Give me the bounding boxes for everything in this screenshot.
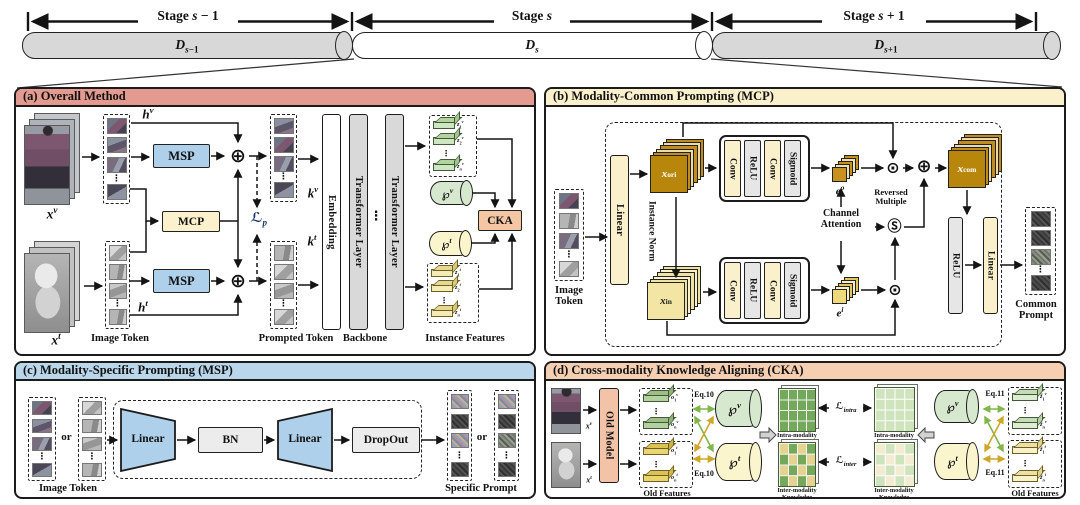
intra-modality-knowledge-grid-old [874, 387, 915, 432]
image-patch [107, 118, 127, 134]
cross-modality-align-arrows-right [981, 401, 1007, 467]
multiply-operator-bottom: ⊙ [887, 282, 903, 298]
visible-image-small [551, 388, 581, 434]
old-features-visible-right: z̃1v ⋮ z̃nv [1008, 387, 1062, 435]
image-patch [559, 261, 579, 277]
prompt-patch [451, 462, 469, 477]
feature-bar-green [433, 137, 455, 145]
prompt-patch [498, 394, 516, 409]
backbone-ellipsis: ⋮ [369, 209, 383, 223]
image-patch [107, 137, 127, 153]
prompt-patch [1031, 249, 1051, 265]
feature-label: o1v [671, 393, 678, 403]
sigmoid-bar: Sigmoid [784, 262, 801, 319]
old-model-bar: Old Model [599, 388, 619, 483]
feature-row: onv [643, 420, 689, 430]
image-token-strip: ⋮ [554, 189, 584, 281]
image-patch [32, 401, 52, 415]
pool-label: ℘v [947, 399, 966, 415]
ellipsis: ⋮ [652, 463, 689, 467]
feature-bar-green [1012, 421, 1038, 429]
feature-row: o1t [643, 446, 689, 456]
feature-row: z1v [433, 120, 473, 130]
feature-row: z1t [431, 268, 475, 278]
panel-b-title: (b) Modality-Common Prompting (MCP) [546, 89, 1064, 107]
conv-label: Conv [728, 158, 738, 180]
feature-bar-green [1012, 393, 1038, 401]
specific-prompt-strip-visible: ⋮ [447, 390, 472, 481]
stage-label: Stage s − 1 [98, 9, 278, 24]
cross-modality-align-arrows-left [691, 401, 717, 467]
cylinder-cap [1043, 31, 1061, 60]
image-patch [559, 213, 579, 229]
transformer-layer-bar: Transformer Layer [349, 114, 368, 330]
specific-prompt-caption: Specific Prompt [428, 483, 534, 494]
panel-cross-modality-knowledge-aligning: (d) Cross-modality Knowledge Aligning (C… [544, 361, 1066, 499]
dataset-cylinder-current: Ds [352, 32, 712, 59]
instance-features-visible: z1v z2v ⋮ znv [429, 115, 477, 177]
instance-features-infrared: z1t z2t ⋮ znt [427, 263, 479, 323]
reversed-multiple-label: Reversed Multiple [862, 188, 920, 206]
infrared-image [24, 241, 82, 335]
image-patch [82, 401, 102, 415]
mcp-box: MCP [162, 211, 220, 232]
prompt-loss-label: ℒp [244, 211, 274, 229]
image-patch [274, 118, 294, 134]
attention-vector-original [832, 155, 859, 182]
ellipsis: ⋮ [502, 453, 511, 458]
transformer-layer-bar: Transformer Layer [385, 114, 404, 330]
token-strip-infrared: ⋮ [78, 397, 106, 481]
or-label: or [57, 432, 76, 444]
attention-vector-normalized [832, 277, 859, 304]
image-patch [559, 193, 579, 209]
feature-row: z̃1v [1012, 392, 1058, 402]
linear-label: Linear [120, 433, 176, 445]
linear-label: Linear [986, 251, 996, 280]
feature-bar-green [433, 121, 455, 129]
image-patch [274, 309, 294, 325]
channel-attention-label: Channel Attention [808, 209, 874, 231]
ellipsis: ⋮ [1021, 462, 1058, 466]
old-model-label: Old Model [604, 411, 615, 460]
panel-modality-common-prompting: (b) Modality-Common Prompting (MCP) ⋮ Im… [544, 87, 1066, 356]
photo-visible [24, 125, 70, 205]
feature-bar-yellow [431, 284, 453, 292]
image-token-caption: Image Token [546, 285, 592, 308]
conv-bar: Conv [764, 140, 781, 197]
cylinder-cap [335, 31, 353, 60]
xv-label: xv [580, 422, 598, 431]
old-features-infrared: o1t ⋮ ont [639, 441, 693, 488]
relu-label: ReLU [951, 253, 961, 278]
ei-label: ei [828, 306, 852, 321]
panel-overall-method: (a) Overall Method xv ⋮ hv MSP ⊕ MCP ℒp … [14, 87, 536, 356]
original-token-stack: xori [650, 139, 706, 195]
attention-branch-original: Conv ReLU Conv Sigmoid [719, 135, 810, 202]
feature-bar-yellow [643, 447, 669, 455]
image-patch [274, 264, 294, 280]
prompt-pool-infrared: ℘t [429, 231, 471, 256]
feature-row: z̃nv [1012, 420, 1058, 430]
block-arrow-left-icon [917, 427, 935, 443]
eq11-label: Eq.11 [981, 469, 1009, 478]
prompt-patch [1031, 211, 1051, 227]
prompted-token-strip-infrared: ⋮ [270, 241, 297, 329]
old-features-caption: Old Features [632, 489, 702, 498]
eq10-label: Eq.10 [690, 391, 718, 400]
instance-features-caption: Instance Features [406, 333, 524, 344]
or-label: or [472, 432, 492, 444]
feature-bar-yellow [643, 474, 669, 482]
pool-label: ℘v [442, 186, 461, 201]
block-arrow-right-icon [759, 427, 777, 443]
ellipsis: ⋮ [440, 299, 475, 303]
l-intra-label: ℒintra [829, 402, 863, 415]
ellipsis: ⋮ [1036, 267, 1045, 272]
image-patch [82, 419, 102, 433]
image-patch [32, 419, 52, 433]
prompt-pool-visible: ℘v [715, 390, 761, 427]
pool-label: ℘t [441, 236, 458, 251]
dropout-box: DropOut [352, 427, 420, 453]
prompt-patch [451, 414, 469, 429]
vector-slice [832, 167, 847, 182]
image-patch [109, 264, 127, 280]
image-token-caption: Image Token [20, 483, 116, 494]
common-token-stack: xcom [948, 134, 1004, 190]
sigmoid-bar: Sigmoid [784, 140, 801, 197]
prompt-patch [1031, 275, 1051, 291]
prompt-patch [451, 433, 469, 448]
cylinder-cap [695, 31, 713, 60]
relu-tail-bar: ReLU [948, 217, 963, 314]
linear-label: Linear [614, 204, 625, 236]
cka-box: CKA [478, 210, 522, 231]
feature-bar-yellow [1012, 446, 1038, 454]
panel-a-title: (a) Overall Method [16, 89, 534, 107]
cylinder-cap [749, 442, 762, 482]
old-features-caption: Old Features [1000, 489, 1066, 498]
cylinder-cap [749, 389, 762, 428]
feature-row: o1v [643, 393, 689, 403]
transformer-label: Transformer Layer [353, 176, 364, 268]
relu-label: ReLU [748, 156, 758, 180]
image-patch [274, 182, 294, 198]
feature-row: z̃nt [1012, 473, 1058, 483]
image-patch [274, 245, 294, 261]
eq10-label: Eq.10 [690, 470, 718, 479]
conv-label: Conv [768, 280, 778, 302]
dataset-cylinder-next: Ds+1 [712, 32, 1060, 59]
prompt-pool-infrared-old: ℘t [934, 443, 978, 480]
ellipsis: ⋮ [112, 176, 121, 181]
feature-label: z̃1v [1040, 392, 1047, 402]
cylinder-cap [966, 442, 979, 481]
feature-bar-yellow [431, 269, 453, 277]
stage-label: Stage s [442, 9, 622, 24]
relu-bar: ReLU [744, 140, 761, 197]
sigmoid-label: Sigmoid [788, 274, 798, 307]
add-operator-infrared: ⊕ [228, 271, 248, 291]
eq11-label: Eq.11 [981, 390, 1009, 399]
image-patch [559, 233, 579, 249]
dataset-projection-lines [17, 59, 1062, 88]
panel-d-title: (d) Cross-modality Knowledge Aligning (C… [546, 363, 1064, 381]
common-prompt-caption: Common Prompt [1004, 299, 1066, 322]
feature-row: z2t [431, 283, 475, 293]
image-patch [274, 156, 294, 172]
image-patch [109, 245, 127, 261]
old-features-visible: o1v ⋮ onv [639, 388, 693, 435]
prompt-patch [498, 414, 516, 429]
linear-label: Linear [277, 433, 333, 445]
ellipsis: ⋮ [113, 301, 122, 306]
feature-row: z̃1t [1012, 445, 1058, 455]
specific-prompt-strip-infrared: ⋮ [494, 390, 519, 481]
feature-bar-green [643, 394, 669, 402]
conv-label: Conv [768, 158, 778, 180]
x-com-label: xcom [948, 150, 986, 188]
sigmoid-label: Sigmoid [788, 152, 798, 185]
feature-row: znt [431, 308, 475, 318]
ellipsis: ⋮ [652, 410, 689, 414]
common-prompt-strip: ⋮ [1025, 207, 1056, 295]
linear-layer-bar: Linear [610, 155, 629, 285]
image-patch [32, 463, 52, 477]
feature-bar-yellow [431, 309, 453, 317]
dataset-label: Ds [525, 37, 538, 55]
feature-label: z2v [457, 136, 464, 146]
feature-row: z2v [433, 136, 473, 146]
panel-c-title: (c) Modality-Specific Prompting (MSP) [16, 363, 534, 381]
hv-label: hv [135, 106, 161, 121]
l-inter-label: ℒinter [829, 456, 863, 469]
add-operator: ⊕ [915, 158, 933, 176]
instance-norm-label: Instance Norm [646, 201, 674, 273]
add-operator-visible: ⊕ [228, 146, 248, 166]
image-patch [274, 137, 294, 153]
dataset-label: Ds+1 [874, 37, 897, 55]
msp-box-infrared: MSP [153, 269, 210, 293]
image-patch [107, 184, 127, 200]
feature-bar-green [433, 163, 455, 171]
prompted-token-strip-visible: ⋮ [270, 114, 297, 202]
feature-row: ont [643, 473, 689, 483]
embedding-layer-bar: Embedding [322, 114, 341, 330]
pool-label: ℘t [729, 453, 748, 470]
panel-modality-specific-prompting: (c) Modality-Specific Prompting (MSP) ⋮ … [14, 361, 536, 499]
ellipsis: ⋮ [38, 454, 47, 459]
image-token-strip-visible: ⋮ [103, 114, 130, 204]
ellipsis: ⋮ [1021, 409, 1058, 413]
relu-label: ReLU [748, 278, 758, 302]
visible-image [24, 113, 82, 207]
bn-box: BN [198, 427, 263, 453]
ht-label: ht [130, 299, 156, 314]
backbone-caption: Backbone [326, 333, 404, 344]
prompt-pool-infrared: ℘t [715, 443, 761, 481]
image-patch [107, 157, 127, 173]
pool-label: ℘t [947, 454, 965, 470]
stage-label: Stage s + 1 [784, 9, 964, 24]
msp-box-visible: MSP [153, 144, 210, 168]
infrared-image-small [551, 442, 581, 488]
prompt-patch [498, 433, 516, 448]
embedding-label: Embedding [326, 195, 337, 250]
ellipsis: ⋮ [565, 252, 574, 257]
inter-modality-knowledge-grid-new [778, 442, 816, 487]
prompt-pool-visible-old: ℘v [934, 390, 978, 423]
pool-label: ℘v [728, 400, 748, 417]
photo-infrared [24, 253, 70, 333]
intra-modality-knowledge-grid-new [778, 388, 816, 432]
feature-bar-yellow [1012, 474, 1038, 482]
inter-knowledge-caption: Inter-modality Knowledge [868, 488, 920, 499]
ellipsis: ⋮ [88, 454, 97, 459]
transformer-label: Transformer Layer [389, 176, 400, 268]
ellipsis: ⋮ [279, 174, 288, 179]
token-strip-visible: ⋮ [28, 397, 56, 481]
prompt-patch [451, 394, 469, 409]
multiply-operator-top: ⊙ [885, 160, 901, 176]
image-patch [109, 309, 127, 325]
dataset-cylinder-prev: Ds−1 [22, 32, 352, 59]
ellipsis: ⋮ [279, 301, 288, 306]
image-token-strip-infrared: ⋮ [105, 241, 130, 329]
cylinder-cap [966, 389, 979, 424]
prompt-patch [1031, 230, 1051, 246]
image-patch [274, 283, 294, 299]
dataset-label: Ds−1 [175, 37, 198, 55]
attention-branch-normalized: Conv ReLU Conv Sigmoid [719, 257, 810, 324]
conv-bar: Conv [724, 262, 741, 319]
x-in-label: xin [647, 282, 685, 320]
eo-label: eo [828, 184, 852, 199]
normalized-token-stack: xin [647, 266, 703, 322]
conv-bar: Conv [724, 140, 741, 197]
image-patch [109, 283, 127, 299]
image-patch [82, 463, 102, 477]
conv-bar: Conv [764, 262, 781, 319]
image-patch [82, 437, 102, 451]
figure-root: Stage s − 1 Stage s Stage s + 1 Ds−1 Ds … [0, 0, 1080, 505]
xv-label: xv [30, 206, 74, 222]
vector-slice [832, 289, 847, 304]
xt-label: xt [580, 476, 598, 485]
old-features-infrared-right: z̃1t ⋮ z̃nt [1008, 440, 1062, 488]
prompt-patch [498, 462, 516, 477]
cylinder-cap [459, 230, 472, 257]
ellipsis: ⋮ [455, 453, 464, 458]
feature-bar-green [643, 421, 669, 429]
conv-label: Conv [728, 280, 738, 302]
image-token-caption: Image Token [78, 333, 162, 344]
linear-tail-bar: Linear [983, 217, 998, 314]
feature-label: z̃1t [1040, 445, 1046, 455]
cylinder-cap [460, 180, 473, 206]
image-patch [32, 437, 52, 451]
x-ori-label: xori [650, 155, 688, 193]
inter-knowledge-caption: Inter-modality Knowledge [772, 488, 822, 499]
relu-bar: ReLU [744, 262, 761, 319]
feature-row: znv [433, 162, 473, 172]
reversed-multiple-operator: Ⓢ [886, 218, 903, 235]
inter-modality-knowledge-grid-old [874, 442, 915, 487]
feature-label: o1t [671, 446, 677, 456]
prompt-pool-visible: ℘v [430, 181, 472, 205]
